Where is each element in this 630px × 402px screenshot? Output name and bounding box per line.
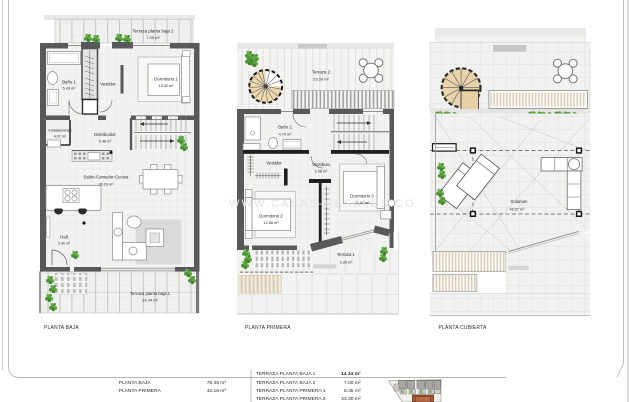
- svg-text:Solarium: Solarium: [511, 199, 528, 204]
- svg-text:Vestidor: Vestidor: [100, 82, 116, 87]
- svg-text:13.32 m²: 13.32 m²: [159, 84, 175, 88]
- svg-text:PLANTA BAJA: PLANTA BAJA: [44, 325, 79, 331]
- svg-text:7.00 m²: 7.00 m²: [344, 380, 361, 386]
- svg-text:8.35 m²: 8.35 m²: [344, 388, 361, 394]
- svg-text:4.97 m²: 4.97 m²: [54, 135, 67, 139]
- svg-text:Baño 2: Baño 2: [278, 125, 292, 130]
- svg-text:TERRAZA PLANTA PRIMERA 2: TERRAZA PLANTA PRIMERA 2: [256, 396, 326, 402]
- svg-text:5.43 m²: 5.43 m²: [63, 87, 77, 91]
- svg-text:Terraza planta baja 2: Terraza planta baja 2: [132, 29, 174, 34]
- svg-text:WWW.CASAS-RESALES.CO: WWW.CASAS-RESALES.CO: [229, 198, 416, 210]
- svg-text:3.40 m²: 3.40 m²: [58, 242, 71, 246]
- svg-text:TERRAZA PLANTA BAJA 1: TERRAZA PLANTA BAJA 1: [256, 371, 316, 377]
- svg-text:PLANTA PRIMERA: PLANTA PRIMERA: [245, 325, 291, 331]
- svg-text:Dormitorio 1: Dormitorio 1: [154, 77, 178, 82]
- svg-text:Terraza 2: Terraza 2: [312, 70, 331, 75]
- svg-text:TERRAZA PLANTA BAJA 2: TERRAZA PLANTA BAJA 2: [256, 380, 316, 386]
- svg-text:Instalaciones: Instalaciones: [48, 128, 71, 133]
- svg-text:Terraza planta baja 1: Terraza planta baja 1: [130, 291, 171, 296]
- svg-text:Distribuidor: Distribuidor: [94, 132, 116, 137]
- svg-text:2.98 m²: 2.98 m²: [315, 170, 329, 174]
- svg-text:Salón-Comedor-Cocina: Salón-Comedor-Cocina: [84, 175, 130, 180]
- svg-text:PLANTA CUBIERTA: PLANTA CUBIERTA: [439, 325, 487, 331]
- svg-text:Dormitorio 2: Dormitorio 2: [259, 214, 283, 219]
- svg-text:Vestíbulo: Vestíbulo: [312, 162, 330, 167]
- svg-text:Baño 1: Baño 1: [62, 80, 76, 85]
- svg-text:23.30 m²: 23.30 m²: [341, 396, 361, 402]
- svg-text:5.48 m²: 5.48 m²: [99, 140, 113, 144]
- svg-text:14.34 m²: 14.34 m²: [142, 298, 158, 303]
- svg-text:PLANTA PRIMERA: PLANTA PRIMERA: [119, 388, 162, 394]
- svg-text:14.34 m²: 14.34 m²: [341, 371, 361, 377]
- svg-text:46.57 m²: 46.57 m²: [510, 208, 526, 212]
- svg-text:4.79 m²: 4.79 m²: [279, 133, 293, 137]
- svg-text:78.45 m²: 78.45 m²: [207, 380, 227, 386]
- svg-text:TERRAZA PLANTA PRIMERA 1: TERRAZA PLANTA PRIMERA 1: [256, 388, 326, 394]
- svg-text:12.88 m²: 12.88 m²: [264, 221, 280, 225]
- svg-text:23.39 m²: 23.39 m²: [313, 77, 329, 82]
- svg-text:Terraza 1: Terraza 1: [337, 252, 356, 257]
- svg-text:Vestidor: Vestidor: [266, 161, 282, 166]
- svg-text:Hall: Hall: [60, 235, 67, 240]
- svg-text:9.35 m²: 9.35 m²: [340, 261, 354, 265]
- svg-text:42.18 m²: 42.18 m²: [207, 388, 227, 394]
- svg-text:PLANTA BAJA: PLANTA BAJA: [119, 380, 152, 386]
- svg-text:7.00 m²: 7.00 m²: [146, 35, 160, 40]
